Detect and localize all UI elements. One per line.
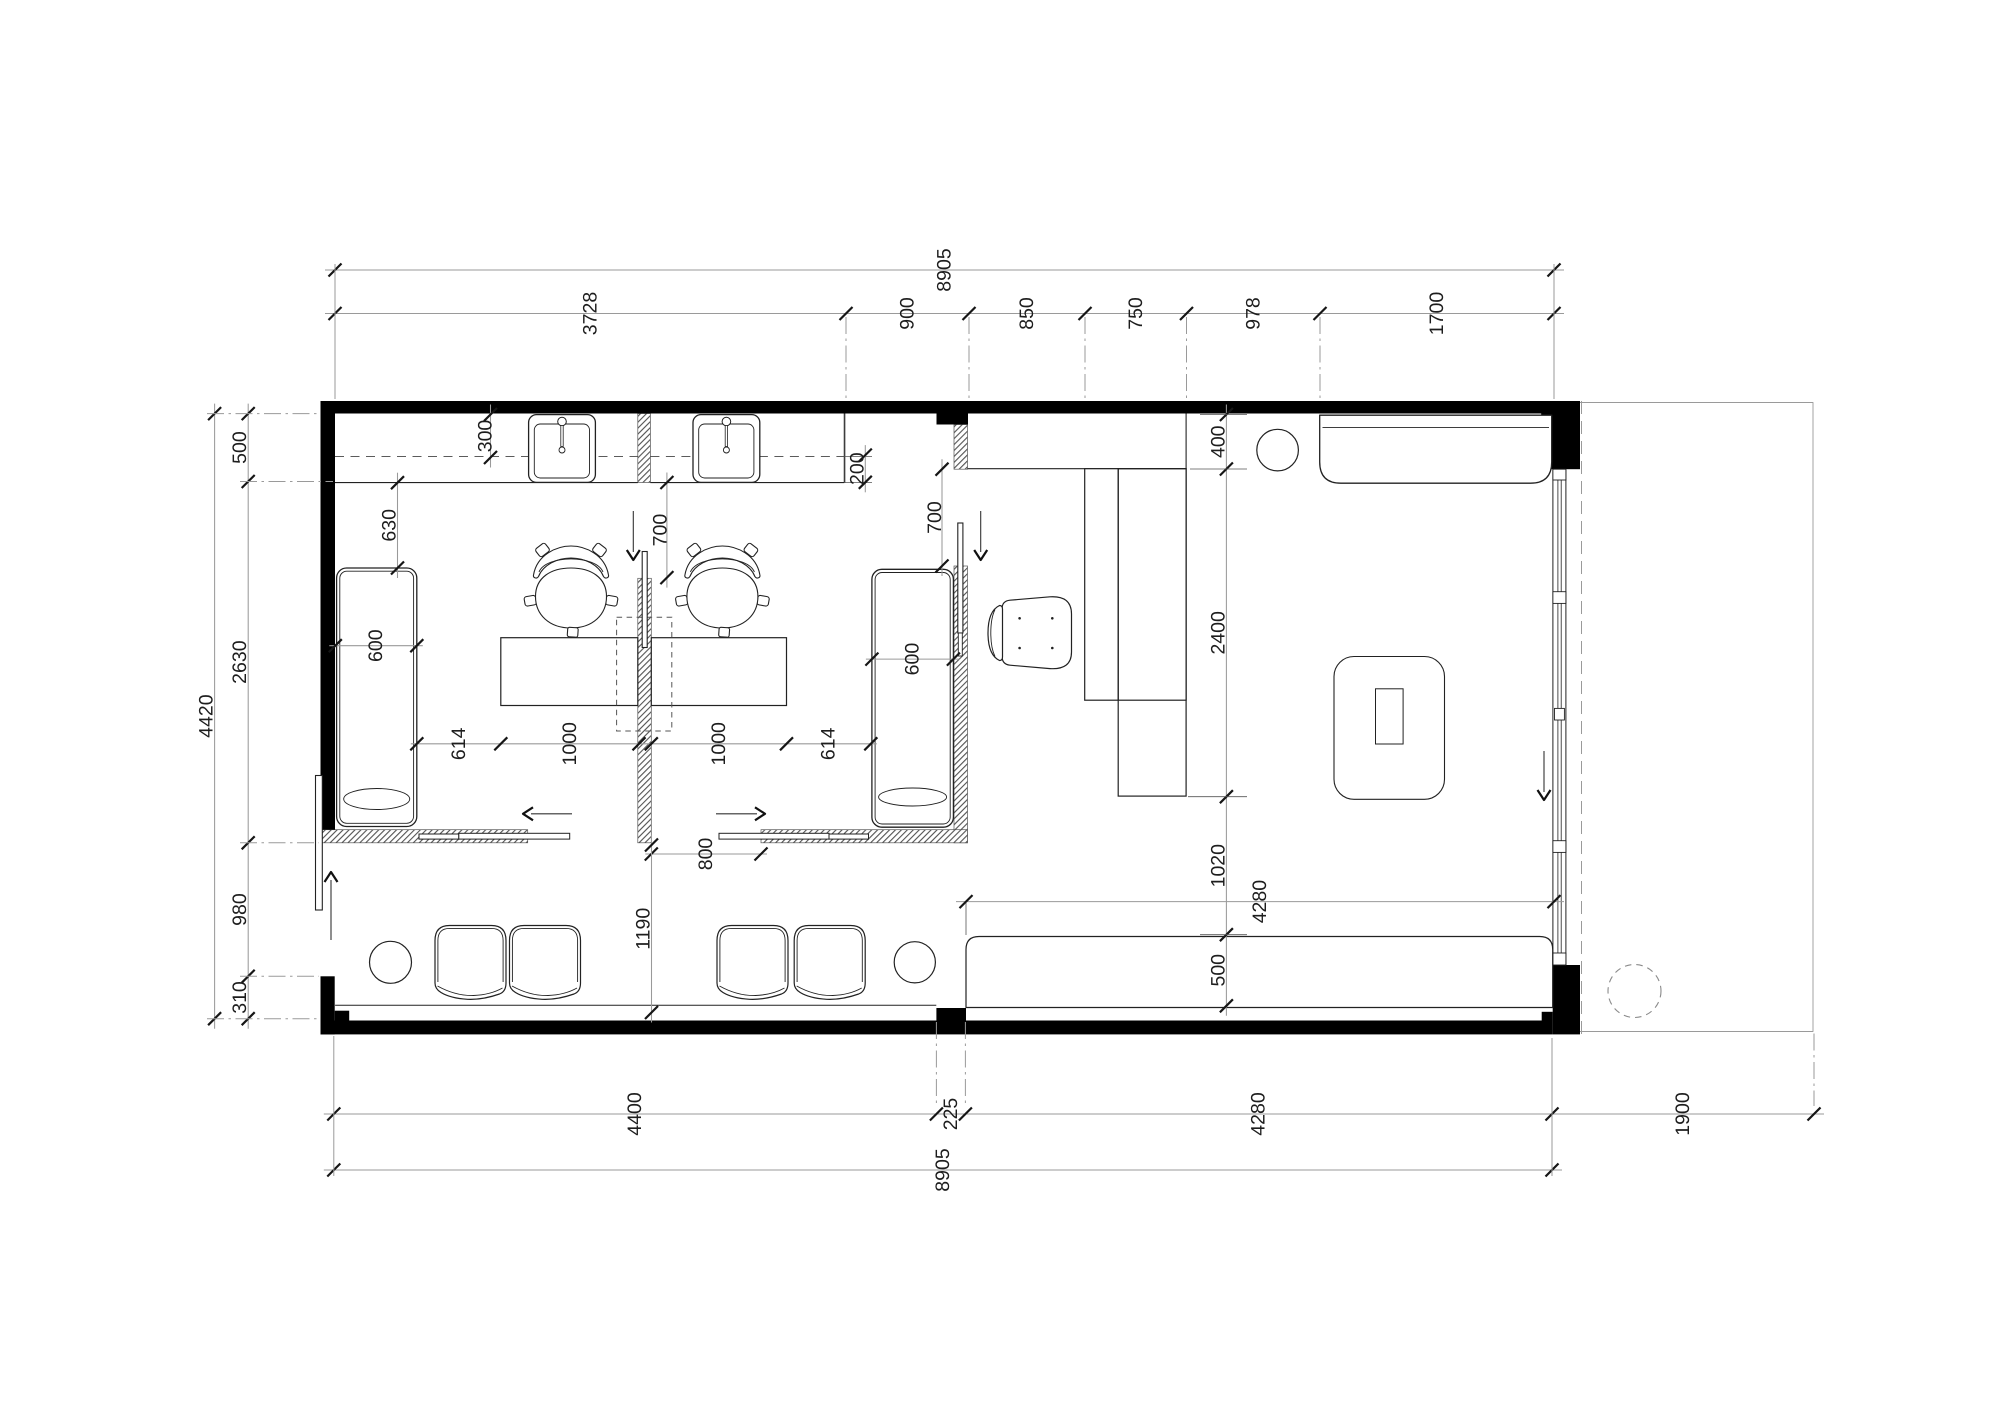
svg-text:800: 800: [695, 838, 717, 871]
svg-text:1190: 1190: [633, 908, 655, 950]
svg-text:4280: 4280: [1248, 1092, 1270, 1136]
svg-text:2630: 2630: [229, 640, 251, 684]
svg-text:3728: 3728: [580, 292, 602, 335]
svg-text:4400: 4400: [624, 1092, 646, 1136]
svg-text:750: 750: [1125, 297, 1147, 330]
svg-text:200: 200: [846, 452, 868, 485]
svg-text:500: 500: [229, 431, 251, 464]
svg-text:978: 978: [1242, 297, 1264, 330]
svg-text:700: 700: [649, 514, 671, 547]
svg-text:400: 400: [1207, 425, 1229, 458]
svg-text:1000: 1000: [708, 722, 730, 766]
svg-text:1020: 1020: [1207, 844, 1229, 888]
svg-text:700: 700: [924, 501, 946, 534]
svg-text:4420: 4420: [196, 694, 218, 738]
svg-text:850: 850: [1016, 297, 1038, 330]
svg-text:310: 310: [229, 981, 251, 1014]
svg-text:1900: 1900: [1672, 1092, 1694, 1136]
svg-text:614: 614: [448, 727, 470, 760]
svg-text:600: 600: [365, 629, 387, 662]
svg-text:600: 600: [902, 643, 924, 676]
svg-text:614: 614: [818, 727, 840, 760]
svg-text:225: 225: [940, 1098, 962, 1131]
svg-text:4280: 4280: [1249, 880, 1271, 924]
svg-text:900: 900: [897, 297, 919, 330]
svg-text:8905: 8905: [934, 248, 956, 292]
svg-text:500: 500: [1207, 954, 1229, 987]
svg-text:8905: 8905: [932, 1148, 954, 1192]
svg-text:300: 300: [475, 420, 497, 453]
svg-text:2400: 2400: [1207, 611, 1229, 655]
svg-text:630: 630: [379, 509, 401, 542]
svg-text:980: 980: [229, 893, 251, 926]
svg-text:1000: 1000: [559, 722, 581, 766]
svg-text:1700: 1700: [1426, 292, 1448, 336]
